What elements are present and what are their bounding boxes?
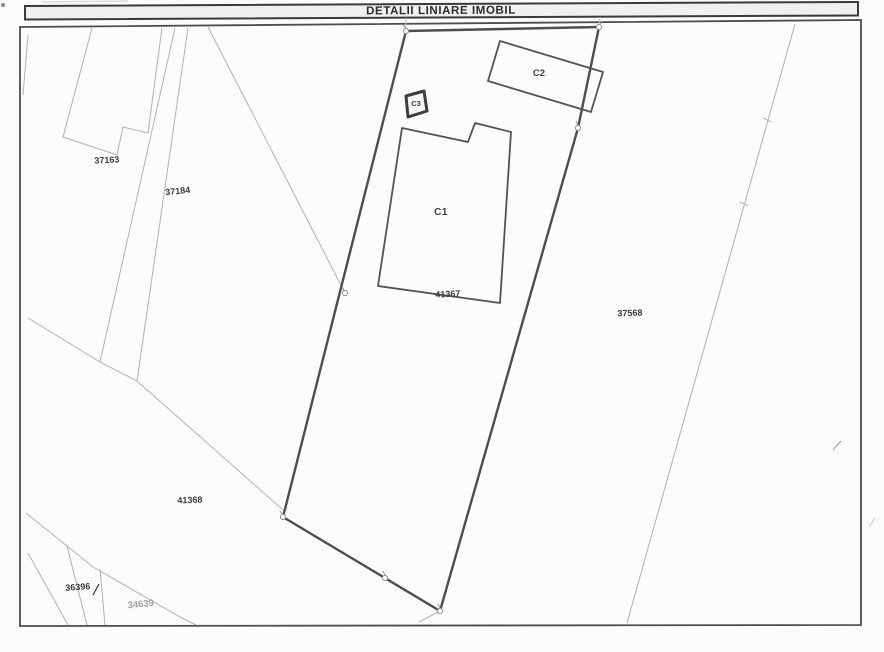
title-bar: DETALII LINIARE IMOBIL <box>25 2 858 20</box>
cadastral-map-canvas: DETALII LINIARE IMOBIL <box>0 0 884 652</box>
page-title: DETALII LINIARE IMOBIL <box>366 5 516 18</box>
map-frame <box>20 20 861 626</box>
scan-tick-outside-frame <box>869 518 875 527</box>
scanned-cadastral-plan: DETALII LINIARE IMOBIL <box>0 0 884 652</box>
scan-speck <box>1 3 5 7</box>
parcel-label-41368: 41368 <box>177 495 202 506</box>
parcel-label-37163: 37163 <box>94 154 120 165</box>
parcel-label-37568: 37568 <box>617 308 642 319</box>
scan-smudge <box>42 1 128 2</box>
parcel-label-41367: 41367 <box>435 288 461 299</box>
building-label-c2: C2 <box>533 68 545 79</box>
building-label-c1: C1 <box>434 207 448 218</box>
parcel-label-36396: 36396 <box>65 581 91 593</box>
building-label-c3: C3 <box>411 99 421 108</box>
